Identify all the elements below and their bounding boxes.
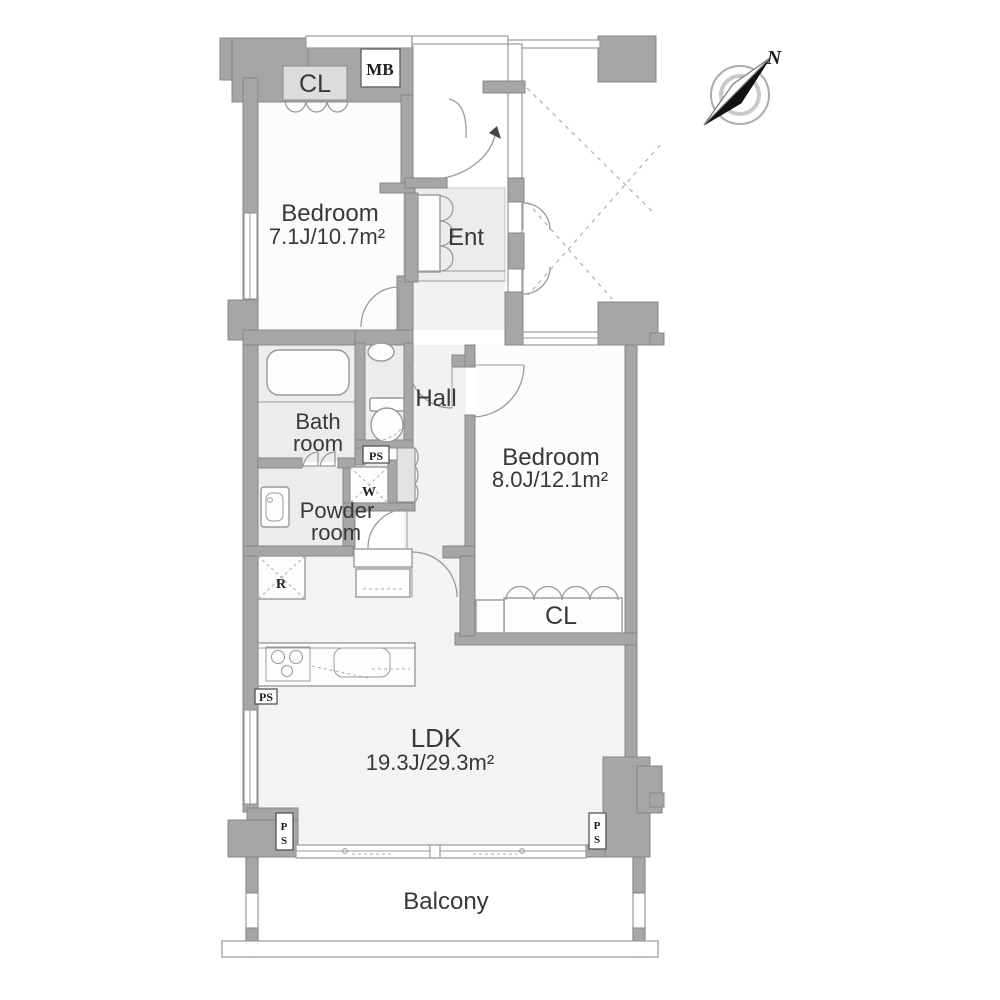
- floor-plan: N Bedroom 7.1J/10.7m² Bedroom 8.0J/12.1m…: [0, 0, 1000, 1000]
- washer-label: W: [362, 485, 376, 500]
- toilet-bowl: [371, 408, 403, 442]
- refrigerator-label: R: [276, 577, 287, 592]
- ldk-label: LDK: [411, 723, 462, 753]
- compass-north-label: N: [766, 47, 783, 69]
- closet2-side-box: [476, 600, 504, 633]
- closet1-label: CL: [299, 70, 331, 98]
- pipe-shaft-label-right-p: P: [594, 820, 601, 832]
- cabinet-lower: [356, 569, 410, 597]
- pipe-shaft-label-right-s: S: [594, 834, 600, 846]
- pipe-shaft-label-left-s: S: [281, 835, 287, 847]
- porch-open-area: [524, 48, 656, 304]
- balcony-sliding-window: [296, 845, 586, 858]
- meter-box-label: MB: [366, 60, 393, 79]
- compass-icon: N: [704, 47, 783, 125]
- balcony-railing: [222, 941, 658, 957]
- closet2-label: CL: [545, 602, 577, 630]
- bedroom1-label: Bedroom: [281, 200, 378, 227]
- balcony-label: Balcony: [403, 888, 488, 915]
- ldk-size-label: 19.3J/29.3m²: [366, 750, 494, 775]
- bathtub: [267, 350, 349, 395]
- floor-plan-page: N Bedroom 7.1J/10.7m² Bedroom 8.0J/12.1m…: [0, 0, 1000, 1000]
- entry-hall-floor: [399, 280, 505, 330]
- pipe-shaft-label-toilet: PS: [369, 449, 383, 463]
- hall-closet-shelf: [397, 448, 415, 502]
- powder-room-label-line2: room: [311, 520, 361, 545]
- bedroom1-size-label: 7.1J/10.7m²: [269, 224, 385, 249]
- top-wall-trim: [306, 36, 412, 48]
- hall-label: Hall: [415, 385, 456, 412]
- bedroom2-size-label: 8.0J/12.1m²: [492, 467, 608, 492]
- bathroom-label-line2: room: [293, 431, 343, 456]
- shoe-cabinet: [418, 195, 440, 272]
- entrance-label: Ent: [448, 224, 484, 251]
- kitchen-counter: [258, 643, 415, 686]
- room-floors: [256, 44, 656, 941]
- corridor-top-line: [412, 36, 508, 44]
- pipe-shaft-label-kitchen: PS: [259, 690, 273, 704]
- cabinet-upper: [354, 549, 412, 567]
- pipe-shaft-label-left-p: P: [281, 821, 288, 833]
- toilet-sink: [368, 343, 394, 361]
- entry-corridor-floor: [413, 44, 508, 188]
